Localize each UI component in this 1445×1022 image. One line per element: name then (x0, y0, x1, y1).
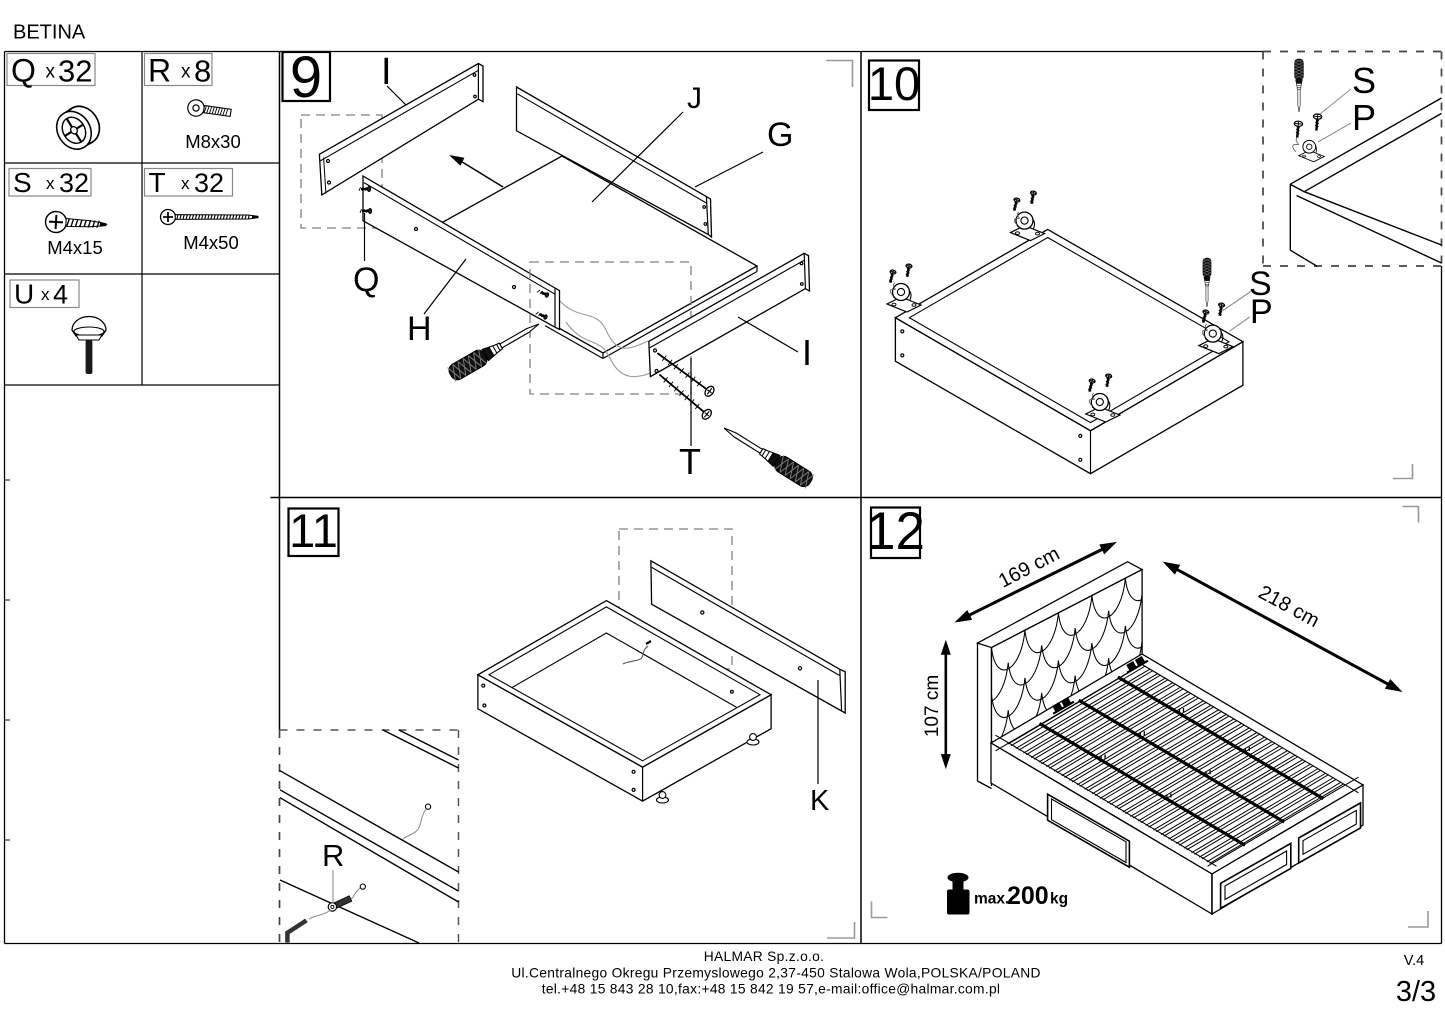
svg-text:107 cm: 107 cm (922, 675, 943, 737)
svg-text:P: P (1250, 293, 1273, 331)
svg-text:I: I (802, 332, 812, 373)
svg-text:U: U (14, 279, 34, 310)
svg-text:K: K (810, 785, 830, 817)
svg-text:R: R (148, 53, 171, 89)
svg-text:Q: Q (353, 261, 379, 299)
svg-text:S: S (1352, 60, 1376, 101)
svg-text:H: H (407, 310, 432, 348)
svg-text:x: x (46, 62, 56, 83)
svg-text:M4x50: M4x50 (183, 232, 239, 253)
svg-text:x: x (181, 174, 190, 193)
svg-text:R: R (322, 838, 344, 873)
svg-text:P: P (1352, 97, 1376, 138)
svg-text:M4x15: M4x15 (47, 237, 103, 258)
svg-text:I: I (381, 51, 392, 93)
svg-text:V.4: V.4 (1404, 953, 1424, 969)
svg-text:HALMAR Sp.z.o.o.: HALMAR Sp.z.o.o. (704, 949, 825, 964)
svg-text:tel.+48 15 843 28 10,fax:+48 1: tel.+48 15 843 28 10,fax:+48 15 842 19 5… (542, 982, 1001, 997)
svg-text:200: 200 (1007, 882, 1049, 910)
svg-text:J: J (687, 82, 702, 115)
svg-text:3/3: 3/3 (1396, 976, 1436, 1008)
svg-text:32: 32 (59, 168, 89, 198)
svg-text:x: x (181, 62, 191, 83)
svg-text:9: 9 (290, 45, 322, 110)
svg-text:G: G (767, 116, 793, 154)
svg-text:Q: Q (11, 53, 36, 89)
svg-text:S: S (13, 167, 32, 198)
svg-text:max.: max. (974, 891, 1009, 908)
svg-text:kg: kg (1050, 891, 1068, 908)
svg-text:12: 12 (866, 502, 925, 561)
svg-text:8: 8 (194, 54, 211, 89)
svg-text:11: 11 (289, 504, 338, 557)
svg-text:x: x (41, 285, 50, 304)
svg-text:4: 4 (53, 280, 68, 310)
svg-text:T: T (149, 167, 166, 198)
svg-text:x: x (46, 174, 55, 193)
svg-text:T: T (679, 441, 701, 482)
svg-text:32: 32 (194, 168, 224, 198)
svg-text:M8x30: M8x30 (185, 131, 241, 152)
svg-text:BETINA: BETINA (13, 22, 86, 44)
svg-text:32: 32 (58, 54, 92, 89)
svg-text:Ul.Centralnego Okregu Przemysl: Ul.Centralnego Okregu Przemyslowego 2,37… (511, 966, 1040, 981)
svg-text:10: 10 (868, 57, 920, 110)
